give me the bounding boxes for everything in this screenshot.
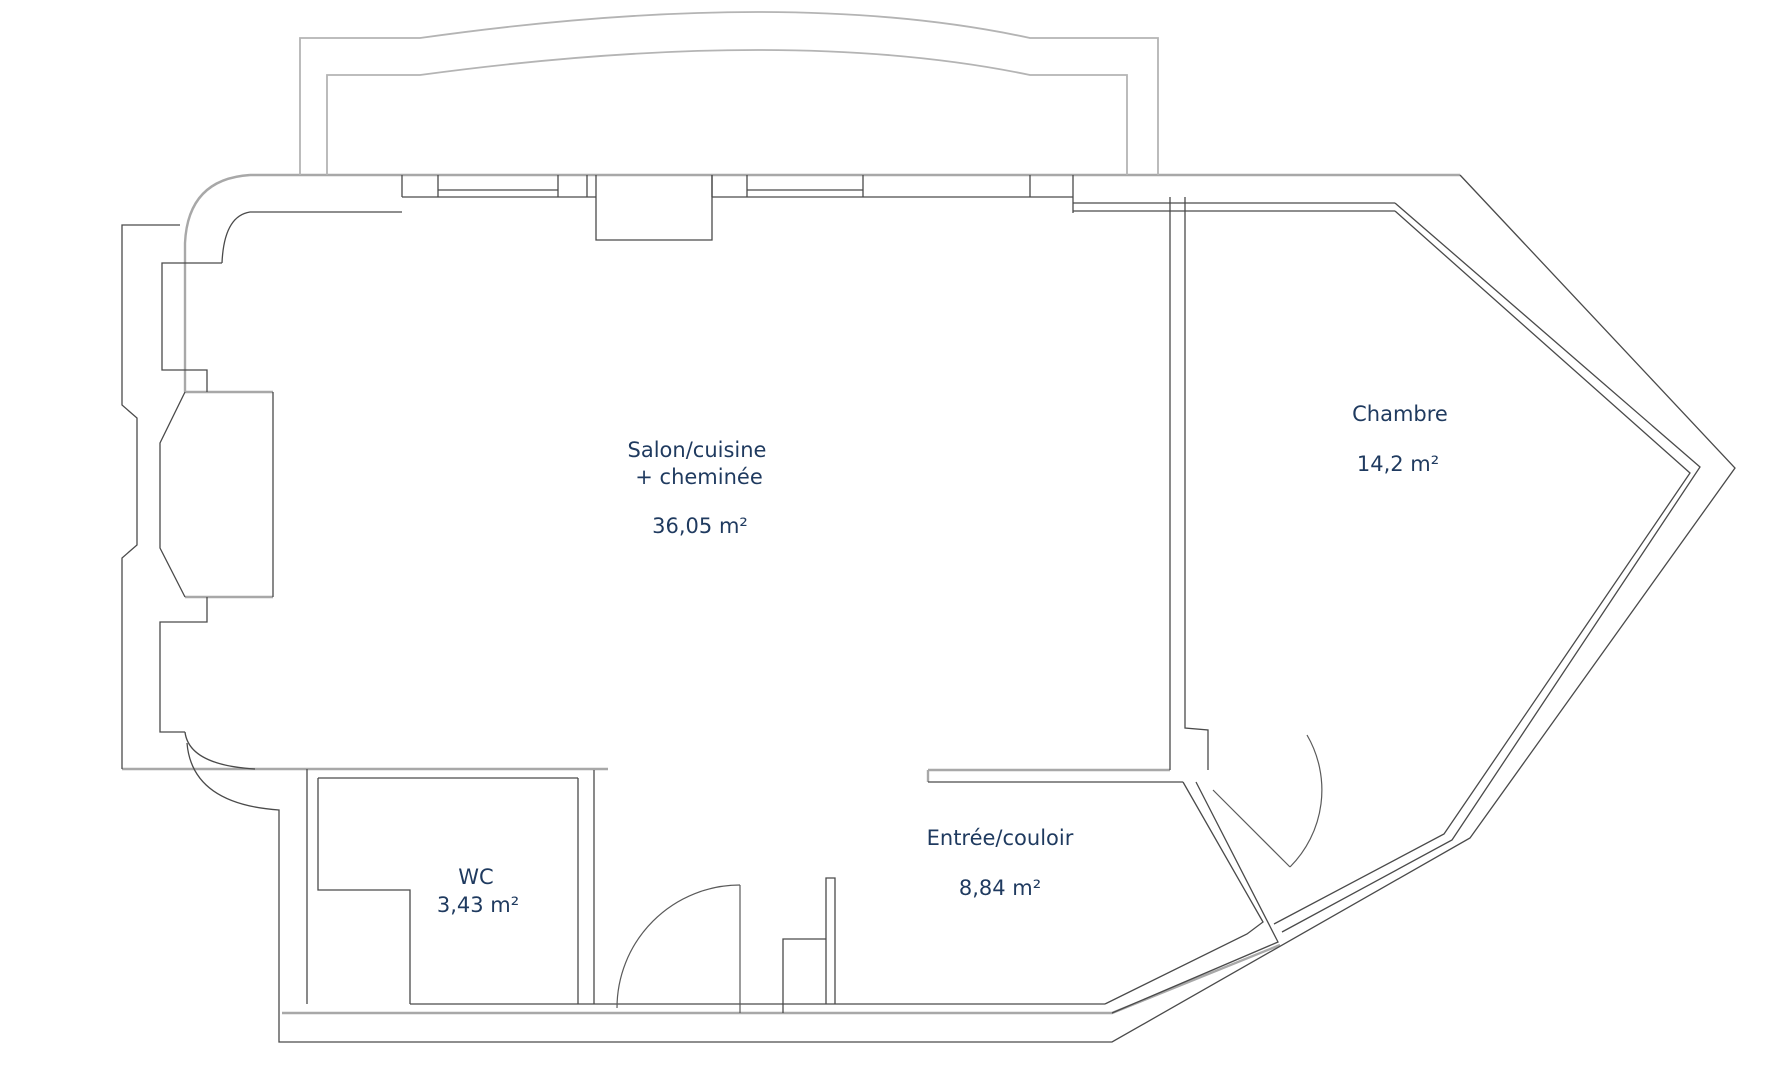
bay-window-glazing-inner xyxy=(1274,211,1690,924)
floor-plan-canvas: Salon/cuisine + cheminée 36,05 m² Chambr… xyxy=(0,0,1790,1080)
room-label-entree: Entrée/couloir xyxy=(927,826,1074,850)
fireplace xyxy=(160,392,273,597)
french-window-bay xyxy=(596,175,712,240)
room-label-salon: Salon/cuisine xyxy=(628,438,767,462)
salon-chambre-divider-wall xyxy=(1170,197,1208,770)
top-wall-window-ticks xyxy=(402,175,1073,213)
chambre-door-swing-arc xyxy=(1290,735,1322,867)
room-area-chambre: 14,2 m² xyxy=(1357,452,1439,476)
room-area-entree: 8,84 m² xyxy=(959,876,1041,900)
floor-plan-page: Salon/cuisine + cheminée 36,05 m² Chambr… xyxy=(0,0,1790,1080)
chambre-top-window-glazing xyxy=(1073,203,1395,211)
top-left-rounded-corner xyxy=(185,175,250,392)
left-wall-inner-upper xyxy=(162,263,222,392)
left-wall-inner-lower xyxy=(160,597,207,732)
room-labels: Salon/cuisine + cheminée 36,05 m² Chambr… xyxy=(437,402,1448,917)
bay-window-glazing-outer xyxy=(1282,203,1700,932)
top-left-inner-corner-arc xyxy=(222,212,402,263)
balcony-inner-outline xyxy=(327,50,1127,175)
light-wall-lines xyxy=(122,12,1460,1013)
left-molding-profile xyxy=(122,225,180,769)
room-label-wc: WC xyxy=(458,865,493,889)
bottom-wall-outer-face xyxy=(282,945,1280,1013)
room-area-salon: 36,05 m² xyxy=(652,514,748,538)
room-label-chambre: Chambre xyxy=(1352,402,1448,426)
fireplace-outline xyxy=(160,392,273,597)
salon-corridor-wall-top-face xyxy=(928,770,1170,782)
room-area-wc: 3,43 m² xyxy=(437,893,519,917)
balcony-outer-outline xyxy=(300,12,1158,175)
corridor-stub-walls xyxy=(783,878,835,1013)
corridor-chambre-diagonal-wall-inner xyxy=(1105,782,1263,1004)
outer-boundary-path xyxy=(187,175,1735,1042)
wc-walls xyxy=(307,769,594,1004)
bottom-left-inner-corner-arc xyxy=(185,732,255,769)
room-label-salon-line2: + cheminée xyxy=(635,465,763,489)
dark-wall-lines xyxy=(122,175,1735,1042)
fireplace-edges xyxy=(185,392,273,597)
wc-door-swing-arc xyxy=(617,885,740,1008)
